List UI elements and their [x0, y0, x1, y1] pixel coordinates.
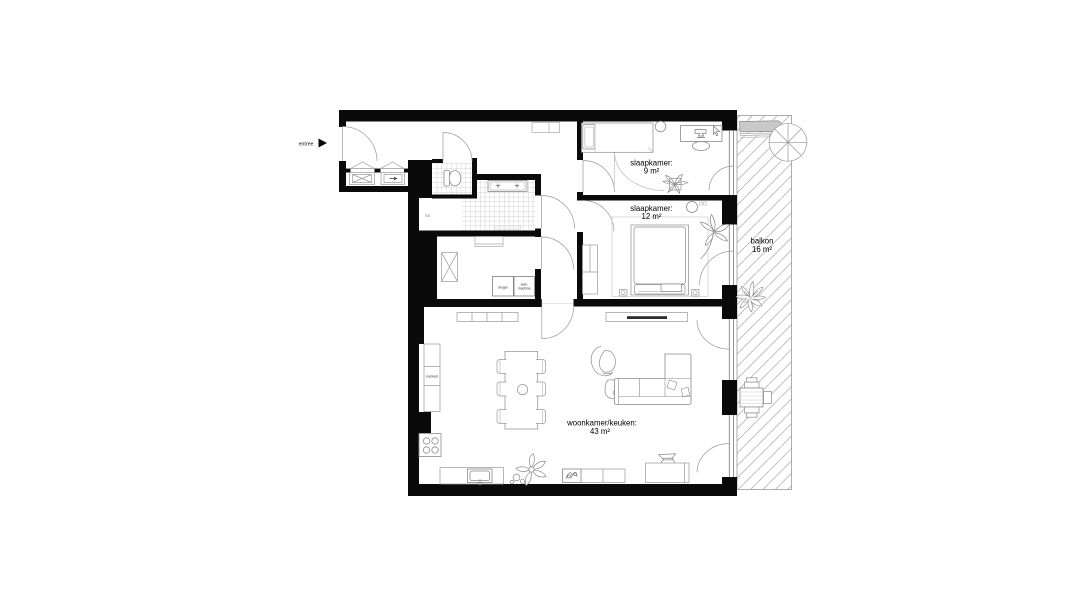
- svg-text:entree: entree: [299, 142, 314, 148]
- svg-text:12 m²: 12 m²: [642, 212, 662, 221]
- svg-text:16 m²: 16 m²: [752, 245, 772, 254]
- svg-text:machine: machine: [518, 287, 531, 291]
- svg-text:9 m²: 9 m²: [644, 167, 660, 176]
- svg-text:droger: droger: [498, 286, 509, 290]
- svg-text:hal: hal: [425, 213, 431, 218]
- svg-text:43 m²: 43 m²: [590, 427, 610, 436]
- svg-text:koelkast: koelkast: [426, 375, 438, 379]
